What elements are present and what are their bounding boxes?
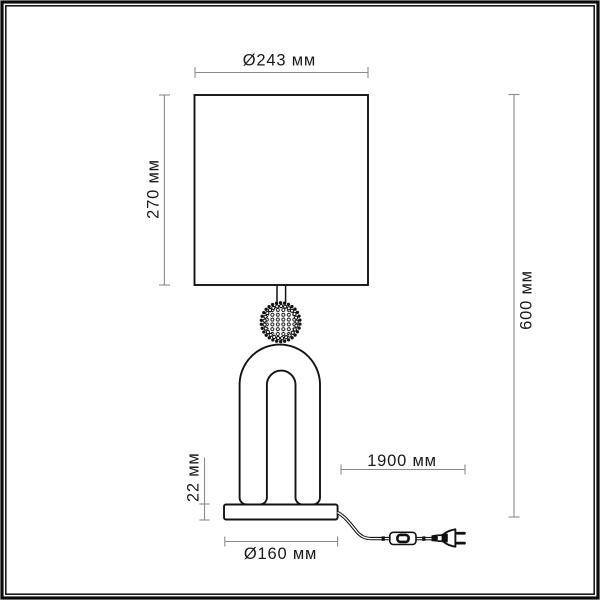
svg-text:270 мм: 270 мм (145, 159, 163, 219)
svg-text:600 мм: 600 мм (518, 270, 536, 330)
svg-text:1900 мм: 1900 мм (367, 452, 437, 470)
svg-text:Ø243 мм: Ø243 мм (243, 52, 316, 70)
svg-text:22 мм: 22 мм (184, 452, 202, 502)
svg-text:Ø160 мм: Ø160 мм (244, 545, 317, 563)
